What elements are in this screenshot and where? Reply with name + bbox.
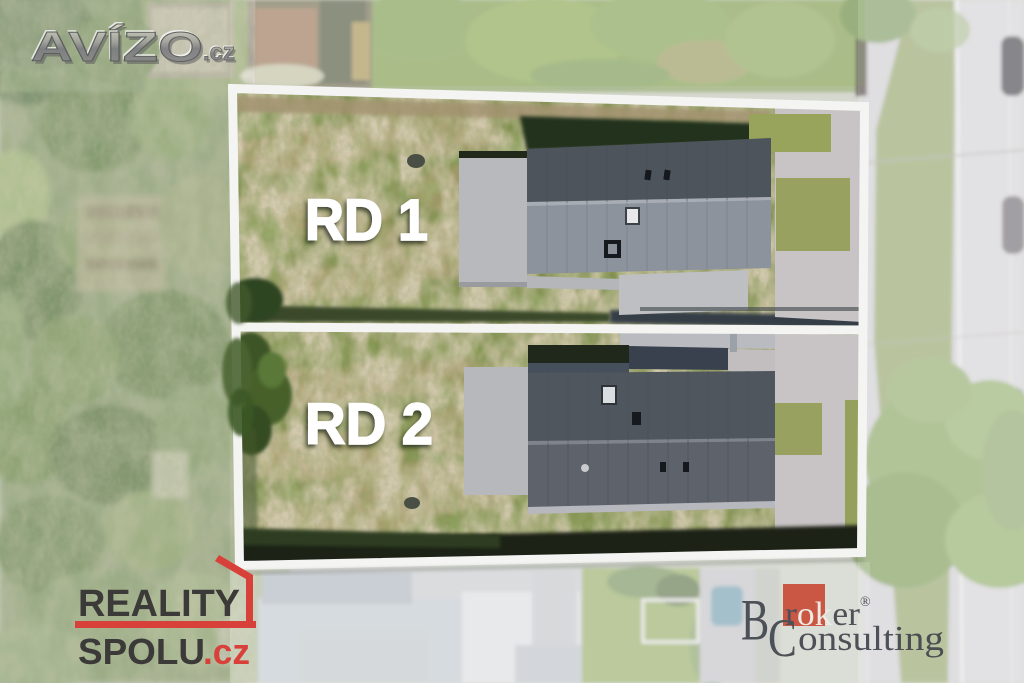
svg-text:C: C xyxy=(768,607,797,668)
svg-text:.cz: .cz xyxy=(203,39,235,66)
svg-text:RD 1: RD 1 xyxy=(305,188,428,253)
svg-text:SPOLU: SPOLU xyxy=(78,631,205,672)
svg-text:RD 2: RD 2 xyxy=(305,392,433,457)
svg-text:onsulting: onsulting xyxy=(798,619,944,658)
svg-text:B: B xyxy=(741,588,769,652)
svg-text:AVÍZO: AVÍZO xyxy=(31,23,203,70)
svg-text:REALITY: REALITY xyxy=(78,583,240,625)
svg-text:®: ® xyxy=(860,595,871,610)
svg-text:.cz: .cz xyxy=(203,631,250,672)
